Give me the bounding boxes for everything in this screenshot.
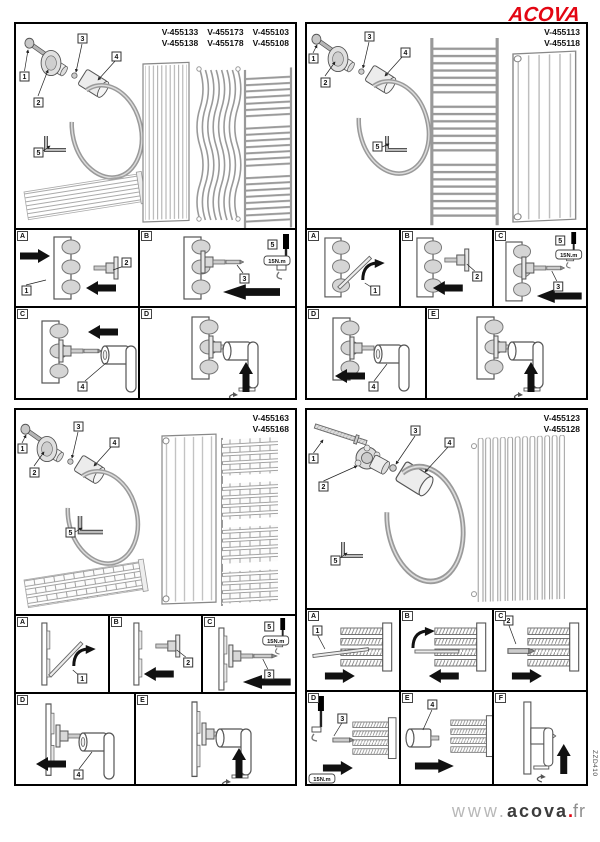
callout-1: 1 — [309, 54, 318, 63]
step-2e: E — [427, 308, 586, 398]
rod — [415, 650, 459, 653]
step-1b: B 3 5 15N.m — [140, 230, 295, 306]
callout-5: 5 — [373, 142, 382, 151]
bracket — [350, 337, 374, 359]
svg-text:4: 4 — [115, 54, 119, 61]
radiator-vertical-tubes — [143, 62, 189, 222]
footer-www: www. — [452, 801, 507, 821]
svg-text:15N.m: 15N.m — [560, 253, 577, 259]
ring-side — [544, 728, 553, 766]
nut — [390, 465, 397, 472]
radiator-tubes-side — [435, 623, 486, 671]
torque-label: 15N.m — [309, 774, 335, 783]
callout-1: 1 — [20, 72, 29, 81]
step-3c: C 3 5 15N.m — [203, 616, 295, 692]
svg-text:4: 4 — [404, 50, 408, 57]
step-2b: B 2 — [401, 230, 493, 306]
step-1b-drawing: 3 5 15N.m — [140, 230, 295, 306]
panel-bottom-right: 1 2 3 4 5 V-455123 V-455128 A 1 — [305, 408, 588, 786]
doc-code: ZZD410 — [591, 750, 598, 776]
up-arrow — [557, 744, 571, 774]
svg-text:4: 4 — [448, 440, 452, 447]
radiator-tubes-side — [528, 623, 579, 671]
callout-1: 1 — [313, 626, 322, 635]
svg-text:15N.m: 15N.m — [313, 777, 330, 783]
main-diagram-1: 1 2 3 4 5 V-455133V-455173V-455103 V-455… — [16, 24, 295, 228]
step-1d-drawing — [140, 308, 295, 398]
exploded-view-3: 1 2 3 4 5 — [16, 410, 295, 614]
bracket — [59, 340, 83, 362]
callout-4: 4 — [112, 52, 121, 61]
rotate-icon — [515, 392, 524, 398]
threaded-rod — [314, 422, 368, 447]
callout-3: 3 — [338, 714, 347, 723]
callout-4: 4 — [401, 48, 410, 57]
radiator-vertical-panel — [513, 51, 576, 222]
svg-text:5: 5 — [376, 144, 380, 151]
callout-3: 3 — [365, 32, 374, 41]
svg-text:1: 1 — [312, 456, 316, 463]
direction-arrow — [429, 669, 459, 683]
step-4f: F — [494, 692, 586, 784]
screw — [254, 654, 277, 658]
direction-arrow — [88, 325, 118, 339]
part-number: V-455103 — [253, 27, 289, 37]
svg-text:5: 5 — [268, 624, 272, 631]
step-3a: A 1 — [16, 616, 108, 692]
part-number: V-455133 — [162, 27, 198, 37]
step-3d-drawing: 4 — [16, 694, 134, 784]
step-letter: A — [17, 617, 28, 627]
panel-top-left: 1 2 3 4 5 V-455133V-455173V-455103 V-455… — [14, 22, 297, 400]
callout-4: 4 — [110, 438, 119, 447]
step-3d: D 4 — [16, 694, 134, 784]
part-number: V-455113 — [544, 27, 580, 37]
radiator-horizontal-slats — [24, 559, 149, 610]
main-diagram-4: 1 2 3 4 5 V-455123 V-455128 — [307, 410, 586, 608]
step-letter: E — [402, 693, 413, 703]
ring-mounted — [223, 342, 258, 391]
step-4e: E 4 — [401, 692, 493, 784]
step-2c: C 3 5 15N.m — [494, 230, 586, 306]
svg-text:2: 2 — [33, 470, 37, 477]
callout-4: 4 — [428, 700, 437, 709]
step-letter: A — [308, 611, 319, 621]
step-4b: B — [401, 610, 493, 690]
svg-text:1: 1 — [80, 676, 84, 683]
bracket — [201, 251, 225, 273]
svg-text:5: 5 — [271, 242, 275, 249]
step-letter: C — [495, 611, 506, 621]
step-3e-drawing — [136, 694, 295, 784]
callout-2: 2 — [472, 272, 481, 281]
panel-bottom-left: 1 2 3 4 5 V-455163 V-455168 A 1 — [14, 408, 297, 786]
step-3e: E — [136, 694, 295, 784]
svg-text:4: 4 — [430, 702, 434, 709]
bracket-plate — [355, 445, 391, 475]
callout-2: 2 — [183, 658, 192, 667]
ring-mounted — [216, 729, 251, 778]
direction-arrow — [512, 669, 542, 683]
bracket — [444, 249, 468, 271]
radiator-tubes-side — [353, 718, 396, 759]
step-letter: B — [111, 617, 122, 627]
part-number: V-455118 — [544, 38, 580, 48]
part-numbers-4: V-455123 V-455128 — [535, 413, 580, 435]
rotate-icon — [223, 779, 232, 784]
svg-text:2: 2 — [125, 260, 129, 267]
ring-mount — [406, 729, 439, 747]
callout-3: 3 — [411, 426, 420, 435]
svg-text:3: 3 — [77, 424, 81, 431]
bracket — [522, 257, 546, 279]
callout-3: 3 — [265, 670, 274, 679]
radiator-section — [54, 237, 80, 299]
step-1a: A 1 2 — [16, 230, 138, 306]
step-2b-drawing: 2 — [401, 230, 493, 306]
radiator-section — [524, 702, 531, 774]
callout-1: 1 — [309, 454, 318, 463]
step-letter: C — [495, 231, 506, 241]
bracket — [56, 725, 80, 747]
radiator-vertical-tubes — [472, 435, 566, 602]
step-letter: F — [495, 693, 506, 703]
step-2d-drawing: 4 — [307, 308, 425, 398]
torque-label: 15N.m — [556, 250, 582, 259]
panel-top-right: 1 2 3 4 5 V-455113 V-455118 A 1 — [305, 22, 588, 400]
ring-assembly — [21, 424, 147, 571]
screw — [547, 266, 565, 270]
svg-text:3: 3 — [414, 428, 418, 435]
callout-2: 2 — [30, 468, 39, 477]
step-letter: C — [204, 617, 215, 627]
direction-arrow — [415, 759, 454, 773]
step-2a-drawing: 1 — [307, 230, 399, 306]
part-number: V-455178 — [207, 38, 243, 48]
step-2c-drawing: 3 5 15N.m — [494, 230, 586, 306]
ring-foot — [534, 766, 549, 769]
step-letter: C — [17, 309, 28, 319]
exploded-view-2: 1 2 3 4 5 — [307, 24, 586, 228]
callout-4: 4 — [78, 382, 87, 391]
radiator-ladder — [245, 67, 291, 228]
part-number: V-455173 — [207, 27, 243, 37]
direction-arrow — [223, 284, 280, 299]
radiator-section — [192, 702, 200, 776]
svg-text:1: 1 — [373, 288, 377, 295]
svg-text:1: 1 — [25, 288, 29, 295]
direction-arrow — [325, 669, 355, 683]
allen-key-icon — [80, 516, 103, 532]
rotate-icon — [230, 392, 239, 398]
svg-text:3: 3 — [81, 36, 85, 43]
callout-3: 3 — [554, 282, 563, 291]
screw — [333, 738, 355, 742]
step-4d: D 3 15N.m — [307, 692, 399, 784]
direction-arrow — [20, 249, 50, 263]
step-3a-drawing: 1 — [16, 616, 108, 692]
torque-label: 15N.m — [264, 256, 290, 265]
ring-mounted — [508, 342, 543, 391]
step-letter: D — [308, 309, 319, 319]
svg-text:4: 4 — [77, 772, 81, 779]
direction-arrow — [323, 761, 353, 775]
part-number: V-455108 — [253, 38, 289, 48]
step-1c: C 4 — [16, 308, 138, 398]
callout-4: 4 — [369, 382, 378, 391]
svg-text:3: 3 — [268, 672, 272, 679]
radiator-ladder — [432, 38, 497, 225]
step-3b: B 2 — [110, 616, 202, 692]
step-letter: D — [17, 695, 28, 705]
svg-text:5: 5 — [559, 238, 563, 245]
callout-5: 5 — [34, 148, 43, 157]
svg-text:2: 2 — [324, 80, 328, 87]
callout-3: 3 — [240, 274, 249, 283]
svg-text:3: 3 — [368, 34, 372, 41]
part-numbers-2: V-455113 V-455118 — [535, 27, 580, 49]
svg-text:5: 5 — [69, 530, 73, 537]
svg-text:1: 1 — [23, 74, 27, 81]
radiator-horizontal-tubes — [24, 171, 147, 221]
step-letter: B — [141, 231, 152, 241]
step-letter: E — [137, 695, 148, 705]
radiator-vertical-panel — [162, 434, 216, 604]
step-letter: D — [308, 693, 319, 703]
part-number: V-455128 — [544, 424, 580, 434]
step-letter: B — [402, 231, 413, 241]
callout-5: 5 — [556, 236, 565, 245]
callout-2: 2 — [34, 98, 43, 107]
step-4a-drawing: 1 — [307, 610, 399, 690]
main-diagram-2: 1 2 3 4 5 V-455113 V-455118 — [307, 24, 586, 228]
bracket — [94, 257, 118, 279]
step-1d: D — [140, 308, 295, 398]
exploded-view-4: 1 2 3 4 5 — [307, 410, 586, 608]
callout-3: 3 — [78, 34, 87, 43]
svg-text:1: 1 — [21, 446, 25, 453]
callout-1: 1 — [22, 286, 31, 295]
svg-text:3: 3 — [557, 284, 561, 291]
step-1a-drawing: 1 2 — [16, 230, 138, 306]
step-1c-drawing: 4 — [16, 308, 138, 398]
step-4f-drawing — [494, 692, 586, 784]
step-2e-drawing — [427, 308, 586, 398]
bracket — [155, 635, 179, 657]
part-numbers-1: V-455133V-455173V-455103 V-455138V-45517… — [153, 27, 289, 49]
exploded-view-1: 1 2 3 4 5 — [16, 24, 295, 228]
allen-key-icon — [46, 136, 66, 150]
ring-mount — [79, 733, 114, 779]
step-4c: C 2 — [494, 610, 586, 690]
radiator-tubes-side — [341, 623, 392, 671]
svg-text:2: 2 — [37, 100, 41, 107]
direction-arrow — [86, 281, 116, 295]
svg-text:5: 5 — [334, 558, 338, 565]
footer-url: www.acova.fr — [0, 801, 586, 822]
svg-text:5: 5 — [37, 150, 41, 157]
callout-5: 5 — [66, 528, 75, 537]
step-4e-drawing: 4 — [401, 692, 493, 784]
radiator-section — [325, 238, 350, 297]
callout-1: 1 — [371, 286, 380, 295]
part-number: V-455123 — [544, 413, 580, 423]
anchor-screw — [508, 648, 535, 653]
radiator-slat-ladder — [222, 435, 278, 606]
step-letter: B — [402, 611, 413, 621]
svg-text:4: 4 — [372, 384, 376, 391]
callout-1: 1 — [78, 674, 87, 683]
allen-key-icon — [387, 136, 407, 150]
callout-2: 2 — [122, 258, 131, 267]
rotate-icon — [538, 774, 546, 782]
callout-3: 3 — [74, 422, 83, 431]
rod — [49, 642, 83, 677]
footer-brand: acova — [507, 801, 568, 821]
instruction-sheet: ACOVA — [0, 0, 600, 842]
screw — [226, 260, 244, 264]
svg-text:4: 4 — [113, 440, 117, 447]
radiator-section — [134, 623, 142, 685]
svg-text:2: 2 — [186, 660, 190, 667]
svg-text:15N.m: 15N.m — [267, 639, 284, 645]
rotate-arrow — [413, 627, 435, 648]
ring-mount — [101, 346, 136, 392]
callout-2: 2 — [321, 78, 330, 87]
radiator-section — [184, 237, 210, 299]
radiator-section — [219, 628, 227, 690]
footer-tld: fr — [573, 801, 586, 821]
step-4b-drawing — [401, 610, 493, 690]
step-2d: D 4 — [307, 308, 425, 398]
callout-4: 4 — [74, 770, 83, 779]
svg-text:1: 1 — [312, 56, 316, 63]
screw — [84, 349, 102, 353]
step-3b-drawing: 2 — [110, 616, 202, 692]
main-diagram-3: 1 2 3 4 5 V-455163 V-455168 — [16, 410, 295, 614]
direction-arrow — [144, 667, 174, 681]
radiator-section — [42, 623, 50, 685]
step-letter: E — [428, 309, 439, 319]
step-letter: A — [17, 231, 28, 241]
step-2a: A 1 — [307, 230, 399, 306]
svg-text:2: 2 — [475, 274, 479, 281]
callout-5: 5 — [268, 240, 277, 249]
callout-4: 4 — [445, 438, 454, 447]
bracket — [229, 645, 253, 667]
ring-assembly — [312, 34, 438, 181]
svg-text:1: 1 — [316, 628, 320, 635]
svg-text:3: 3 — [243, 276, 247, 283]
step-4c-drawing: 2 — [494, 610, 586, 690]
ring-mount — [374, 345, 409, 391]
torque-label: 15N.m — [263, 636, 289, 645]
svg-text:15N.m: 15N.m — [268, 259, 285, 265]
svg-text:2: 2 — [322, 484, 326, 491]
svg-text:4: 4 — [81, 384, 85, 391]
step-letter: A — [308, 231, 319, 241]
callout-5: 5 — [331, 556, 340, 565]
ring-assembly — [25, 38, 151, 185]
part-number: V-455163 — [253, 413, 289, 423]
radiator-wavy-tubes — [197, 67, 241, 221]
step-4a: A 1 — [307, 610, 399, 690]
callout-2: 2 — [319, 482, 328, 491]
step-letter: D — [141, 309, 152, 319]
step-3c-drawing: 3 5 15N.m — [203, 616, 295, 692]
radiator-tubes-side — [450, 716, 492, 757]
part-number: V-455168 — [253, 424, 289, 434]
callout-5: 5 — [265, 622, 274, 631]
step-4d-drawing: 3 15N.m — [307, 692, 399, 784]
part-numbers-3: V-455163 V-455168 — [244, 413, 289, 435]
callout-1: 1 — [18, 444, 27, 453]
svg-text:2: 2 — [507, 618, 511, 625]
part-number: V-455138 — [162, 38, 198, 48]
svg-text:3: 3 — [340, 716, 344, 723]
